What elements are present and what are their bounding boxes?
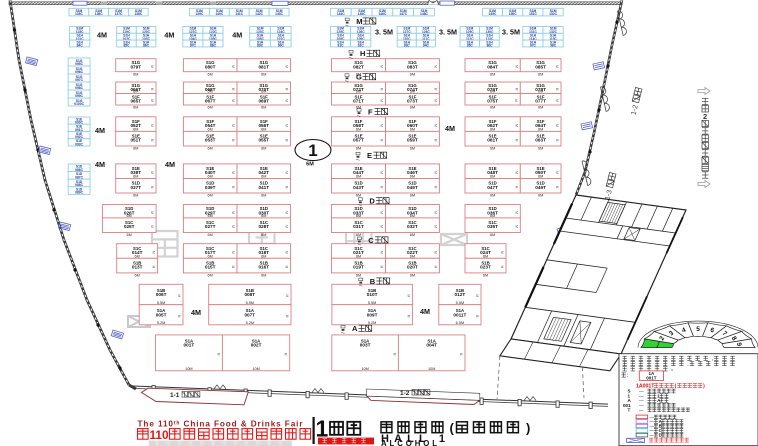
svg-text:6M: 6M: [208, 194, 213, 198]
svg-text:4M: 4M: [445, 124, 455, 133]
svg-text:M: M: [555, 99, 559, 102]
svg-text:067T: 067T: [205, 99, 216, 104]
svg-text:077T: 077T: [535, 99, 546, 104]
svg-text:6M: 6M: [133, 90, 138, 94]
svg-text:88C: 88C: [210, 44, 217, 48]
svg-text:6M: 6M: [208, 106, 213, 110]
svg-text:138C: 138C: [134, 12, 143, 16]
svg-text:M: M: [285, 251, 289, 254]
svg-text:140C: 140C: [215, 12, 224, 16]
svg-text:095C: 095C: [75, 62, 84, 66]
svg-text:008T: 008T: [244, 292, 255, 297]
svg-text:G: G: [356, 73, 362, 82]
svg-text:M: M: [150, 88, 154, 91]
svg-text:6M: 6M: [261, 106, 266, 110]
svg-text:6M: 6M: [356, 128, 361, 132]
svg-text:055T: 055T: [258, 138, 269, 143]
svg-text:012T: 012T: [455, 292, 466, 297]
svg-text:6M: 6M: [538, 106, 543, 110]
svg-text:035T: 035T: [487, 224, 498, 229]
svg-text:M: M: [152, 266, 156, 269]
svg-text:057T: 057T: [353, 138, 364, 143]
svg-text:143C: 143C: [275, 12, 284, 16]
svg-text:M: M: [555, 65, 559, 68]
svg-text:M: M: [500, 251, 504, 254]
svg-text:M: M: [231, 211, 235, 214]
svg-text:M: M: [380, 124, 384, 127]
svg-text:M: M: [514, 171, 518, 174]
svg-text:M: M: [285, 171, 289, 174]
svg-text:4M: 4M: [420, 307, 430, 316]
svg-text:M: M: [177, 295, 181, 298]
svg-text:M: M: [231, 225, 235, 228]
svg-text:M: M: [285, 124, 289, 127]
svg-text:2: 2: [703, 112, 707, 121]
svg-text:5.2M: 5.2M: [368, 321, 376, 325]
svg-text:6M: 6M: [261, 274, 266, 278]
svg-text:M: M: [514, 186, 518, 189]
svg-text:080T: 080T: [205, 64, 216, 69]
svg-text:063T: 063T: [535, 138, 546, 143]
svg-text:M: M: [433, 266, 437, 269]
svg-text:M: M: [285, 211, 289, 214]
svg-text:005T: 005T: [156, 312, 167, 317]
svg-text:6M: 6M: [490, 90, 495, 94]
svg-text:M: M: [285, 266, 289, 269]
svg-text:6M: 6M: [208, 214, 213, 218]
svg-text:M: M: [284, 353, 288, 356]
svg-text:5.5M: 5.5M: [246, 301, 254, 305]
svg-text:M: M: [433, 124, 437, 127]
svg-text:6M: 6M: [410, 194, 415, 198]
svg-text:M: M: [216, 353, 220, 356]
svg-text:147C: 147C: [399, 12, 408, 16]
svg-text:M: M: [555, 139, 559, 142]
svg-text:032T: 032T: [407, 224, 418, 229]
svg-text:4M: 4M: [191, 308, 201, 317]
svg-text:083T: 083T: [407, 64, 418, 69]
svg-text:M: M: [433, 171, 437, 174]
svg-text:6M: 6M: [410, 128, 415, 132]
svg-text:M: M: [434, 186, 438, 189]
svg-text:M: M: [231, 65, 235, 68]
svg-text:6M: 6M: [208, 233, 213, 237]
svg-text:6M: 6M: [261, 194, 266, 198]
svg-text:M: M: [285, 315, 289, 318]
svg-text:136C: 136C: [95, 12, 104, 16]
svg-text:M: M: [285, 225, 289, 228]
svg-text:031T: 031T: [353, 224, 364, 229]
svg-text:6M: 6M: [538, 194, 543, 198]
svg-text:6M: 6M: [133, 106, 138, 110]
svg-text:6M: 6M: [208, 254, 213, 258]
svg-text:M: M: [150, 225, 154, 228]
svg-text:M: M: [285, 295, 289, 298]
svg-text:(: (: [450, 421, 455, 436]
svg-text:10M: 10M: [428, 367, 435, 371]
svg-text:5.5M: 5.5M: [157, 301, 165, 305]
svg-text:059T: 059T: [407, 138, 418, 143]
svg-text:M: M: [231, 251, 235, 254]
svg-text:A: A: [352, 324, 358, 333]
svg-text:10M: 10M: [185, 367, 192, 371]
svg-text:M: M: [555, 186, 559, 189]
svg-text:6M: 6M: [261, 90, 266, 94]
svg-text:—: —: [639, 408, 644, 413]
svg-text:M: M: [177, 315, 181, 318]
svg-text:4M: 4M: [95, 126, 105, 135]
svg-text:1-1: 1-1: [170, 392, 180, 399]
svg-text:6M: 6M: [490, 233, 495, 237]
svg-text:013T: 013T: [132, 265, 143, 270]
svg-text:082T: 082T: [353, 64, 364, 69]
svg-text:145C: 145C: [358, 12, 367, 16]
svg-text:079T: 079T: [130, 64, 141, 69]
svg-text:6M: 6M: [261, 254, 266, 258]
svg-text:。: 。: [671, 367, 676, 373]
svg-text:87C: 87C: [190, 44, 197, 48]
svg-text:151C: 151C: [529, 12, 538, 16]
svg-text:144C: 144C: [337, 12, 346, 16]
svg-text:M: M: [514, 139, 518, 142]
svg-text:6M: 6M: [133, 72, 138, 76]
svg-text:6M: 6M: [410, 233, 415, 237]
svg-text:—: —: [650, 433, 655, 438]
svg-text:025T: 025T: [124, 224, 135, 229]
svg-text:6M: 6M: [261, 128, 266, 132]
svg-text:M: M: [434, 88, 438, 91]
svg-text:6M: 6M: [208, 128, 213, 132]
svg-text:039T: 039T: [205, 185, 216, 190]
svg-text:6M: 6M: [490, 72, 495, 76]
svg-text:5.2M: 5.2M: [157, 321, 165, 325]
svg-text:M: M: [150, 186, 154, 189]
svg-text:M: M: [406, 315, 410, 318]
svg-text:075T: 075T: [487, 99, 498, 104]
svg-text:097C: 097C: [75, 78, 84, 82]
svg-text:6M: 6M: [127, 233, 132, 237]
svg-text:M: M: [433, 211, 437, 214]
svg-text:027T: 027T: [205, 224, 216, 229]
svg-text:M: M: [475, 295, 479, 298]
svg-text:5.5M: 5.5M: [456, 301, 464, 305]
svg-text:M: M: [514, 88, 518, 91]
svg-text:6M: 6M: [410, 175, 415, 179]
svg-text:,: ,: [687, 361, 688, 367]
svg-text:M: M: [514, 65, 518, 68]
svg-text:065T: 065T: [130, 99, 141, 104]
svg-text:016T: 016T: [258, 265, 269, 270]
svg-text:85C: 85C: [123, 44, 130, 48]
svg-text:6M: 6M: [208, 147, 213, 151]
svg-text:1-2: 1-2: [400, 390, 410, 397]
svg-text:152C: 152C: [549, 12, 558, 16]
svg-text:028T: 028T: [258, 224, 269, 229]
svg-text:010T: 010T: [367, 292, 378, 297]
svg-text:10M: 10M: [361, 367, 368, 371]
svg-text:6M: 6M: [356, 194, 361, 198]
svg-text:M: M: [150, 99, 154, 102]
svg-text:M: M: [231, 139, 235, 142]
svg-text:6M: 6M: [208, 90, 213, 94]
svg-text:92C: 92C: [358, 44, 365, 48]
svg-text:M: M: [514, 225, 518, 228]
svg-text:6M: 6M: [356, 254, 361, 258]
svg-text:002T: 002T: [251, 343, 262, 348]
svg-text:3. 5M: 3. 5M: [439, 28, 457, 37]
svg-text:91C: 91C: [337, 44, 344, 48]
svg-text:T: T: [628, 408, 631, 413]
svg-text:M: M: [514, 124, 518, 127]
svg-text:M: M: [231, 88, 235, 91]
svg-text:6M: 6M: [490, 128, 495, 132]
svg-text:6M: 6M: [538, 90, 543, 94]
svg-text:110: 110: [150, 428, 169, 442]
svg-text:6M: 6M: [208, 175, 213, 179]
svg-text:98C: 98C: [550, 44, 557, 48]
svg-text:E: E: [367, 151, 372, 160]
svg-text:135C: 135C: [75, 12, 84, 16]
svg-text:M: M: [500, 266, 504, 269]
svg-text:4M: 4M: [165, 160, 175, 169]
svg-text:6M: 6M: [356, 233, 361, 237]
svg-text:B: B: [370, 277, 376, 286]
svg-text:D: D: [369, 197, 375, 206]
svg-text:4M: 4M: [95, 160, 105, 169]
svg-text:M: M: [231, 171, 235, 174]
svg-text:：: ：: [627, 373, 632, 379]
svg-text:M: M: [150, 139, 154, 142]
svg-text:6M: 6M: [490, 147, 495, 151]
svg-text:6M: 6M: [306, 162, 314, 168]
svg-text:081T: 081T: [258, 64, 269, 69]
svg-text:6M: 6M: [133, 194, 138, 198]
svg-text:139C: 139C: [195, 12, 204, 16]
svg-text:6M: 6M: [133, 175, 138, 179]
svg-text:M: M: [459, 353, 463, 356]
svg-text:10M: 10M: [252, 367, 259, 371]
svg-text:023T: 023T: [480, 265, 491, 270]
svg-text:084T: 084T: [487, 64, 498, 69]
svg-text:4M: 4M: [164, 31, 174, 40]
svg-text:M: M: [285, 186, 289, 189]
svg-text:M: M: [555, 124, 559, 127]
svg-text:6M: 6M: [490, 106, 495, 110]
svg-text:148C: 148C: [420, 12, 429, 16]
svg-text:061T: 061T: [487, 138, 498, 143]
svg-text:M: M: [150, 171, 154, 174]
svg-text:4M: 4M: [232, 31, 242, 40]
svg-text:6M: 6M: [135, 274, 140, 278]
svg-text:M: M: [285, 65, 289, 68]
svg-text:): ): [526, 421, 530, 436]
svg-text:3. 5M: 3. 5M: [502, 28, 520, 37]
svg-text:M: M: [555, 171, 559, 174]
svg-text:M: M: [433, 251, 437, 254]
svg-text:007T: 007T: [244, 312, 255, 317]
svg-text:6M: 6M: [483, 274, 488, 278]
svg-text:093C: 093C: [75, 143, 84, 147]
svg-text:M: M: [231, 124, 235, 127]
svg-text:6M: 6M: [410, 90, 415, 94]
svg-text:M: M: [433, 99, 437, 102]
svg-text:95C: 95C: [467, 44, 474, 48]
svg-text:M: M: [356, 17, 362, 26]
svg-text:M: M: [285, 139, 289, 142]
svg-text:6M: 6M: [410, 254, 415, 258]
svg-text:049T: 049T: [535, 185, 546, 190]
svg-text:137C: 137C: [115, 12, 124, 16]
svg-text:3. 5M: 3. 5M: [375, 28, 393, 37]
svg-text:6M: 6M: [490, 194, 495, 198]
svg-text:6M: 6M: [261, 233, 266, 237]
svg-text:142C: 142C: [255, 12, 264, 16]
svg-text:M: M: [380, 139, 384, 142]
svg-text:001T: 001T: [646, 376, 657, 381]
svg-text:6M: 6M: [356, 274, 361, 278]
svg-text:94C: 94C: [423, 44, 430, 48]
svg-text:M: M: [433, 225, 437, 228]
svg-text:ALCOHOL: ALCOHOL: [381, 439, 437, 446]
svg-text:93C: 93C: [404, 44, 411, 48]
svg-text:5.2M: 5.2M: [246, 321, 254, 325]
svg-text:6M: 6M: [410, 106, 415, 110]
svg-text:M: M: [284, 99, 288, 102]
svg-text:M: M: [380, 211, 384, 214]
svg-text:6M: 6M: [356, 147, 361, 151]
svg-text:M: M: [380, 65, 384, 68]
svg-text:6M: 6M: [127, 214, 132, 218]
svg-text:6M: 6M: [538, 147, 543, 151]
svg-text:M: M: [150, 211, 154, 214]
svg-text:150C: 150C: [509, 12, 518, 16]
svg-text:071T: 071T: [353, 99, 364, 104]
svg-text:141C: 141C: [235, 12, 244, 16]
svg-text:M: M: [392, 353, 396, 356]
svg-text:041T: 041T: [258, 185, 269, 190]
svg-text:001T: 001T: [184, 343, 195, 348]
svg-text:M: M: [555, 88, 559, 91]
svg-text:6M: 6M: [410, 72, 415, 76]
svg-text:6M: 6M: [261, 147, 266, 151]
svg-text:6M: 6M: [410, 214, 415, 218]
svg-text:86C: 86C: [143, 44, 150, 48]
svg-text:M: M: [285, 88, 289, 91]
svg-text:6M: 6M: [133, 128, 138, 132]
svg-text:6M: 6M: [261, 72, 266, 76]
svg-text:6M: 6M: [490, 214, 495, 218]
svg-text:5.5M: 5.5M: [368, 301, 376, 305]
svg-text:C: C: [368, 236, 374, 245]
svg-text:M: M: [231, 266, 235, 269]
svg-text:047T: 047T: [487, 185, 498, 190]
svg-text:1: 1: [308, 141, 317, 160]
svg-text:M: M: [152, 251, 156, 254]
svg-text:6M: 6M: [356, 175, 361, 179]
svg-text:069T: 069T: [258, 99, 269, 104]
svg-text:M: M: [380, 88, 384, 91]
svg-text:84C: 84C: [77, 44, 84, 48]
svg-text:89C: 89C: [257, 44, 264, 48]
svg-text:043T: 043T: [353, 185, 364, 190]
svg-text:089C: 089C: [75, 191, 84, 195]
svg-text:M: M: [150, 65, 154, 68]
svg-text:6M: 6M: [356, 90, 361, 94]
svg-text:6M: 6M: [483, 254, 488, 258]
svg-text:037T: 037T: [130, 185, 141, 190]
svg-text:099C: 099C: [75, 94, 84, 98]
svg-text:M: M: [231, 186, 235, 189]
svg-text:M: M: [150, 124, 154, 127]
svg-text:015T: 015T: [205, 265, 216, 270]
svg-text:045T: 045T: [407, 185, 418, 190]
svg-text:M: M: [433, 65, 437, 68]
svg-text:M: M: [380, 251, 384, 254]
svg-text:M: M: [231, 99, 235, 102]
svg-text:096C: 096C: [75, 70, 84, 74]
svg-text:6M: 6M: [208, 72, 213, 76]
svg-text:6M: 6M: [410, 147, 415, 151]
svg-text:6M: 6M: [261, 214, 266, 218]
svg-text:M: M: [406, 295, 410, 298]
svg-text:6M: 6M: [538, 128, 543, 132]
svg-text:009T: 009T: [367, 312, 378, 317]
svg-text:146C: 146C: [378, 12, 387, 16]
svg-text:5: 5: [696, 326, 700, 333]
svg-text:0011T: 0011T: [453, 312, 466, 317]
svg-text:6M: 6M: [490, 175, 495, 179]
svg-text:M: M: [380, 266, 384, 269]
svg-text:M: M: [380, 171, 384, 174]
svg-text:6M: 6M: [135, 254, 140, 258]
svg-text:M: M: [379, 99, 383, 102]
svg-text:006T: 006T: [156, 292, 167, 297]
svg-text:149C: 149C: [489, 12, 498, 16]
svg-text:073T: 073T: [407, 99, 418, 104]
svg-text:019T: 019T: [353, 265, 364, 270]
svg-text:M: M: [433, 139, 437, 142]
svg-text:6.5M: 6.5M: [456, 321, 464, 325]
svg-text:96C: 96C: [486, 44, 493, 48]
svg-text:053T: 053T: [205, 138, 216, 143]
svg-text:97C: 97C: [530, 44, 537, 48]
svg-text:6M: 6M: [356, 106, 361, 110]
svg-text:M: M: [380, 186, 384, 189]
svg-text:0100C: 0100C: [74, 102, 84, 106]
svg-text:6M: 6M: [208, 274, 213, 278]
svg-text:004T: 004T: [426, 343, 437, 348]
svg-text:M: M: [475, 315, 479, 318]
svg-text:H: H: [360, 49, 365, 58]
svg-text:6M: 6M: [410, 274, 415, 278]
svg-text:M: M: [514, 99, 518, 102]
svg-text:051T: 051T: [130, 138, 141, 143]
svg-text:,: ,: [712, 356, 713, 362]
svg-text:M: M: [514, 211, 518, 214]
svg-text:020T: 020T: [407, 265, 418, 270]
svg-text:4M: 4M: [97, 31, 107, 40]
svg-text:6M: 6M: [538, 175, 543, 179]
svg-text:M: M: [380, 225, 384, 228]
svg-text:098C: 098C: [75, 86, 84, 90]
svg-text:6M: 6M: [261, 175, 266, 179]
svg-text:90C: 90C: [278, 44, 285, 48]
svg-text:003T: 003T: [360, 343, 371, 348]
svg-text:085T: 085T: [535, 64, 546, 69]
svg-text:F: F: [368, 107, 373, 116]
svg-text:6M: 6M: [133, 147, 138, 151]
svg-text:6M: 6M: [538, 72, 543, 76]
